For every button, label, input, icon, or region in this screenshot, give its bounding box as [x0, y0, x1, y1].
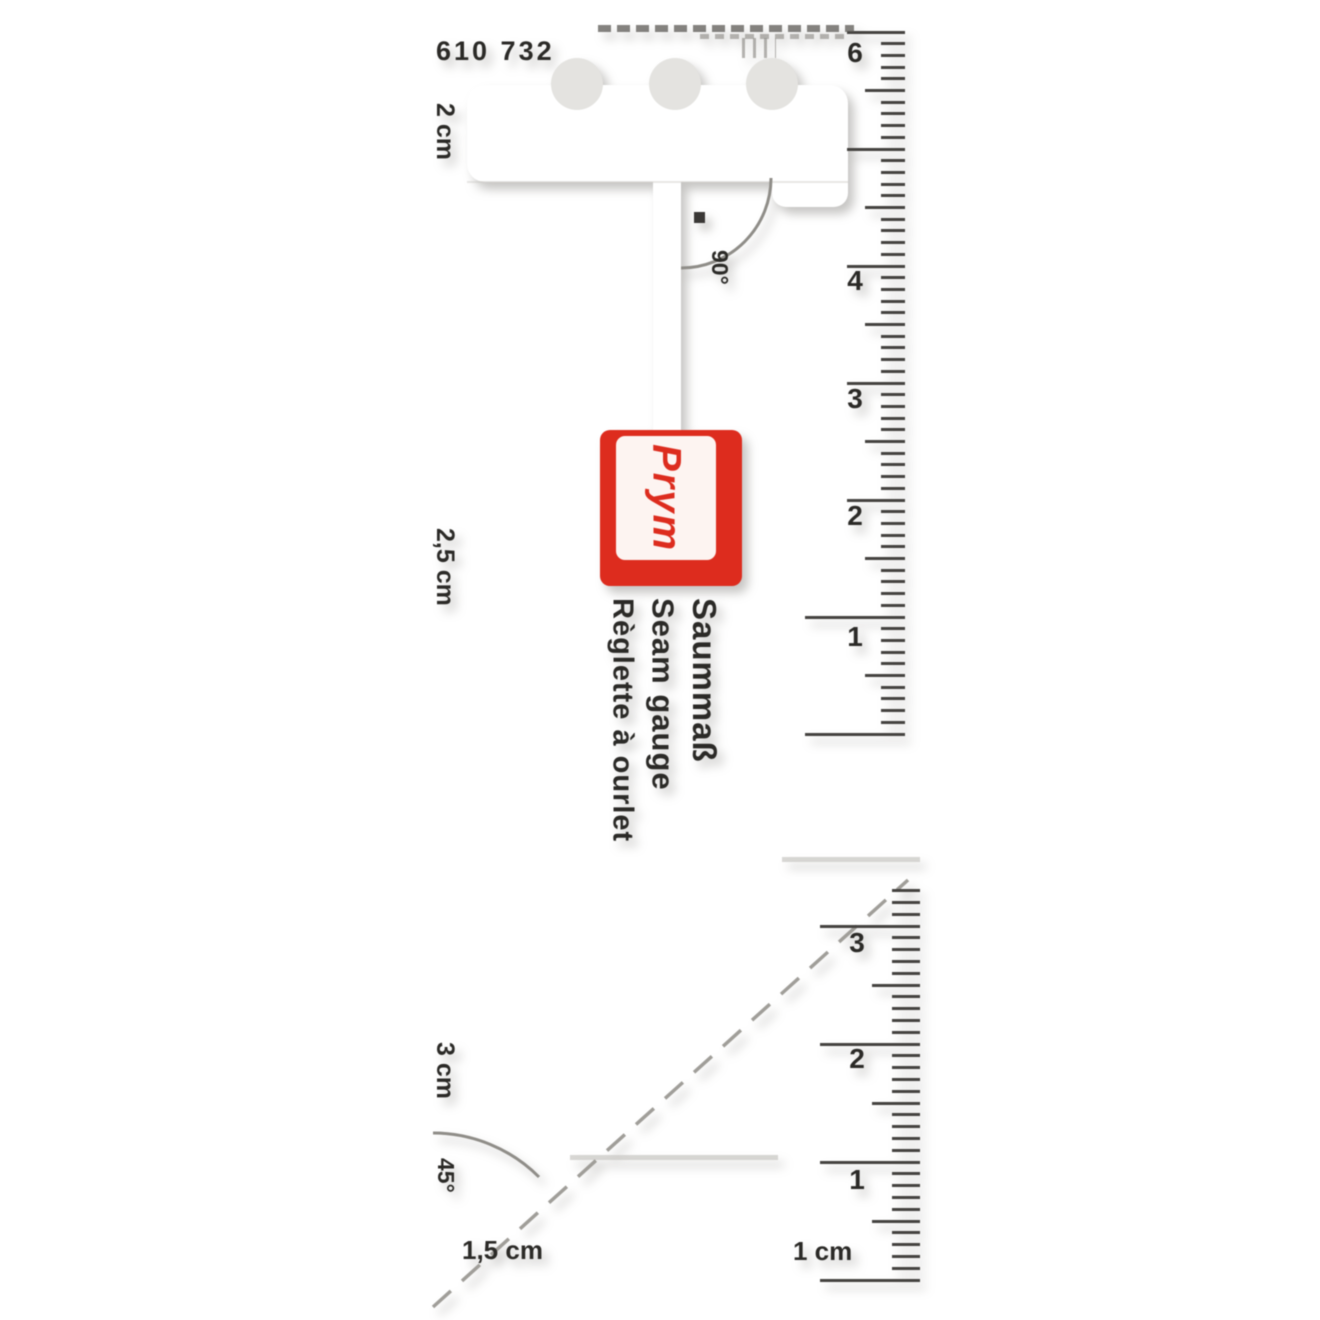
angle-90-label: 90° — [706, 250, 733, 285]
mm-tick — [892, 1208, 920, 1211]
mm-tick — [881, 253, 905, 256]
product-name-german: Saummaß — [682, 598, 726, 943]
mm-tick — [881, 662, 905, 665]
mm-tick — [892, 1007, 920, 1010]
mm-tick — [892, 1149, 920, 1152]
mm-tick — [881, 393, 905, 396]
mm-tick — [881, 42, 905, 45]
mm-tick — [881, 697, 905, 700]
mm-tick — [881, 405, 905, 408]
angle-45-label: 45° — [432, 1158, 459, 1193]
mm-tick — [881, 522, 905, 525]
mm-tick — [881, 370, 905, 373]
mm-tick — [881, 183, 905, 186]
mm-tick — [881, 124, 905, 127]
mm-tick — [881, 417, 905, 420]
mm-tick — [865, 89, 905, 92]
mm-tick — [892, 1184, 920, 1187]
slot-width-label-1cm: 1 cm — [793, 1236, 852, 1267]
mm-tick — [892, 1054, 920, 1057]
mm-tick — [881, 171, 905, 174]
mm-tick — [892, 1019, 920, 1022]
mm-tick — [892, 1078, 920, 1081]
mm-tick — [881, 686, 905, 689]
bottom-width-label-1-5cm: 1,5 cm — [462, 1235, 543, 1266]
mm-tick — [892, 960, 920, 963]
mm-tick — [892, 1137, 920, 1140]
mm-tick — [881, 300, 905, 303]
mm-tick — [881, 627, 905, 630]
mm-tick — [881, 534, 905, 537]
mm-tick — [892, 1243, 920, 1246]
mm-tick — [881, 604, 905, 607]
ruler-number: 2 — [838, 500, 872, 532]
mm-tick — [892, 889, 920, 892]
mm-tick — [892, 1066, 920, 1069]
tab-width-label-3cm: 3 cm — [430, 1042, 459, 1099]
mm-tick — [881, 112, 905, 115]
ruler-number: 3 — [838, 383, 872, 415]
mm-tick — [881, 241, 905, 244]
mm-tick — [881, 639, 905, 642]
ruler-number: 2 — [840, 1043, 874, 1075]
mm-tick — [892, 1031, 920, 1034]
mm-tick — [881, 311, 905, 314]
mm-tick — [892, 1113, 920, 1116]
seam-gauge: 64321 321 610 732 2 cm 2,5 cm 3 cm 45° 9… — [0, 0, 1320, 1320]
cm-tick — [847, 31, 905, 34]
mm-tick — [881, 463, 905, 466]
product-name-block: Saummaß Seam gauge Règlette à ourlet — [596, 598, 726, 943]
prym-logo: Prym — [600, 430, 742, 586]
cm-tick — [847, 148, 905, 151]
mm-tick — [892, 1172, 920, 1175]
tab-width-label-2cm: 2 cm — [430, 103, 459, 160]
product-photo: 64321 321 610 732 2 cm 2,5 cm 3 cm 45° 9… — [0, 0, 1320, 1320]
mm-tick — [881, 276, 905, 279]
mm-tick — [881, 229, 905, 232]
mm-tick — [881, 136, 905, 139]
mm-tick — [881, 487, 905, 490]
mm-tick — [881, 159, 905, 162]
cm-tick — [805, 616, 905, 619]
product-name-french: Règlette à ourlet — [603, 598, 641, 943]
mm-tick — [881, 651, 905, 654]
prym-wordmark: Prym — [644, 444, 689, 552]
mm-tick — [865, 323, 905, 326]
ruler-number: 1 — [838, 621, 872, 653]
ruler-number: 3 — [840, 927, 874, 959]
ruler-number: 4 — [838, 265, 872, 297]
mm-tick — [881, 288, 905, 291]
mm-tick — [881, 580, 905, 583]
mm-tick — [881, 218, 905, 221]
mm-tick — [881, 358, 905, 361]
mm-tick — [881, 475, 905, 478]
prym-logo-panel: Prym — [616, 436, 716, 560]
mm-tick — [892, 1231, 920, 1234]
mm-tick — [892, 1267, 920, 1270]
mm-tick — [892, 1255, 920, 1258]
mm-tick — [881, 545, 905, 548]
mm-tick — [892, 995, 920, 998]
mm-tick — [892, 936, 920, 939]
mm-tick — [881, 335, 905, 338]
mm-tick — [892, 913, 920, 916]
product-name-english: Seam gauge — [642, 598, 683, 943]
mm-tick — [865, 674, 905, 677]
mm-tick — [881, 346, 905, 349]
mm-tick — [865, 557, 905, 560]
mm-tick — [892, 1125, 920, 1128]
mm-tick — [881, 77, 905, 80]
mm-tick — [892, 972, 920, 975]
mm-tick — [881, 194, 905, 197]
mm-tick — [872, 984, 920, 987]
mm-tick — [892, 1090, 920, 1093]
mm-tick — [892, 948, 920, 951]
ruler-number: 6 — [838, 37, 872, 69]
mm-tick — [881, 66, 905, 69]
mm-tick — [881, 569, 905, 572]
cm-tick — [820, 1279, 920, 1282]
tab-width-label-2-5cm: 2,5 cm — [430, 528, 459, 606]
tiny-tick-marks — [742, 38, 776, 58]
mm-tick — [881, 54, 905, 57]
mm-tick — [892, 1196, 920, 1199]
mm-tick — [872, 1220, 920, 1223]
ruler-number: 1 — [840, 1164, 874, 1196]
illegible-microtext — [598, 25, 854, 32]
mm-tick — [881, 452, 905, 455]
mm-tick — [881, 101, 905, 104]
mm-tick — [881, 510, 905, 513]
mm-tick — [865, 440, 905, 443]
cm-tick — [805, 733, 905, 736]
mm-tick — [865, 206, 905, 209]
mm-tick — [881, 592, 905, 595]
mm-tick — [881, 721, 905, 724]
mm-tick — [881, 709, 905, 712]
mm-tick — [892, 901, 920, 904]
mm-tick — [881, 428, 905, 431]
mm-tick — [872, 1102, 920, 1105]
right-angle-dot — [694, 212, 705, 223]
article-number: 610 732 — [436, 36, 555, 67]
